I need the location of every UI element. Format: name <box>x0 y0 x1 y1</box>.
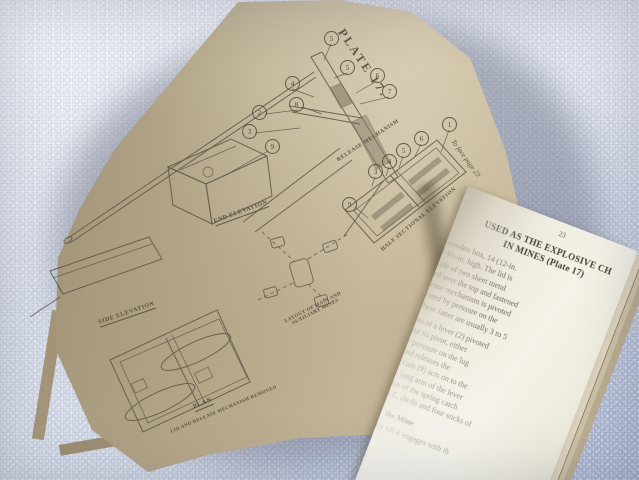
callout-circle: 5 <box>396 143 411 158</box>
callout-circle: 6 <box>370 68 385 83</box>
page-number: 23 <box>557 230 566 240</box>
callout-circle: 5 <box>324 31 339 46</box>
callout-circle: 6 <box>414 131 429 146</box>
callout-circle: 9 <box>342 197 357 212</box>
callout-circle: 8 <box>289 97 304 112</box>
callout-circle: 2 <box>252 105 267 120</box>
callout-circle: 3 <box>368 164 383 179</box>
callout-circle: 5 <box>340 60 355 75</box>
callout-circle: 7 <box>382 84 397 99</box>
callout-circle: 4 <box>285 76 300 91</box>
callout-circle: 9 <box>265 139 280 154</box>
callout-circle: 3 <box>242 124 257 139</box>
callout-circle: 1 <box>442 117 457 132</box>
photo-open-manual-book: PLATE 17. To face page 23 RELEASE MECHAN… <box>0 0 639 480</box>
callout-circle: 4 <box>382 154 397 169</box>
